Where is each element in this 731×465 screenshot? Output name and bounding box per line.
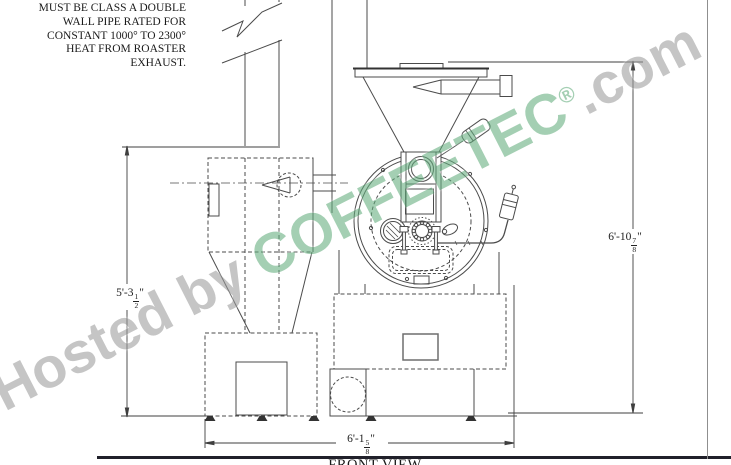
dimension-bottom-label: 6'-158": [336, 433, 386, 456]
dimension-right-label: 6'-1078": [598, 231, 652, 254]
note-line: EXHAUST.: [36, 57, 186, 71]
hopper-lid: [355, 69, 487, 77]
sampling-trier: [437, 117, 492, 158]
note-line: WALL PIPE RATED FOR: [36, 16, 186, 30]
hopper-damper-arm: [413, 76, 512, 97]
chaff-drawer-door: [236, 362, 287, 415]
bean-chute: [401, 152, 441, 222]
note-line: CONSTANT 1000° TO 2300°: [36, 30, 186, 44]
fan-housing: [330, 369, 366, 416]
cyclone-inlet-arrow: [262, 177, 290, 193]
leveling-foot: [257, 416, 268, 421]
sheet-border-bottom: [97, 456, 731, 460]
drawing-sheet: MUST BE CLASS A DOUBLE WALL PIPE RATED F…: [0, 0, 731, 465]
cyclone-collector: [170, 158, 348, 421]
leveling-foot: [466, 416, 477, 421]
door-handle: [441, 222, 460, 237]
leveling-foot: [366, 416, 377, 421]
note-line: HEAT FROM ROASTER: [36, 43, 186, 57]
leveling-foot: [309, 416, 320, 421]
cooling-tray: [389, 247, 453, 274]
leveling-foot: [205, 416, 216, 421]
discharge-plate: [414, 276, 429, 284]
pipe-break-symbol: [222, 3, 282, 37]
gas-valve-assembly: [437, 184, 521, 245]
dimension-lines: [121, 61, 643, 448]
exhaust-stack-pipe: [222, 0, 367, 213]
cyclone-latch: [209, 184, 219, 216]
cabinet-panel: [403, 334, 438, 360]
note-line: MUST BE CLASS A DOUBLE: [36, 2, 186, 16]
roaster-face: [354, 152, 488, 288]
sheet-border-right: [707, 0, 708, 459]
callout-note: MUST BE CLASS A DOUBLE WALL PIPE RATED F…: [36, 2, 186, 71]
dimension-left-label: 5'-312": [104, 287, 156, 310]
roaster-hopper: [353, 64, 512, 153]
